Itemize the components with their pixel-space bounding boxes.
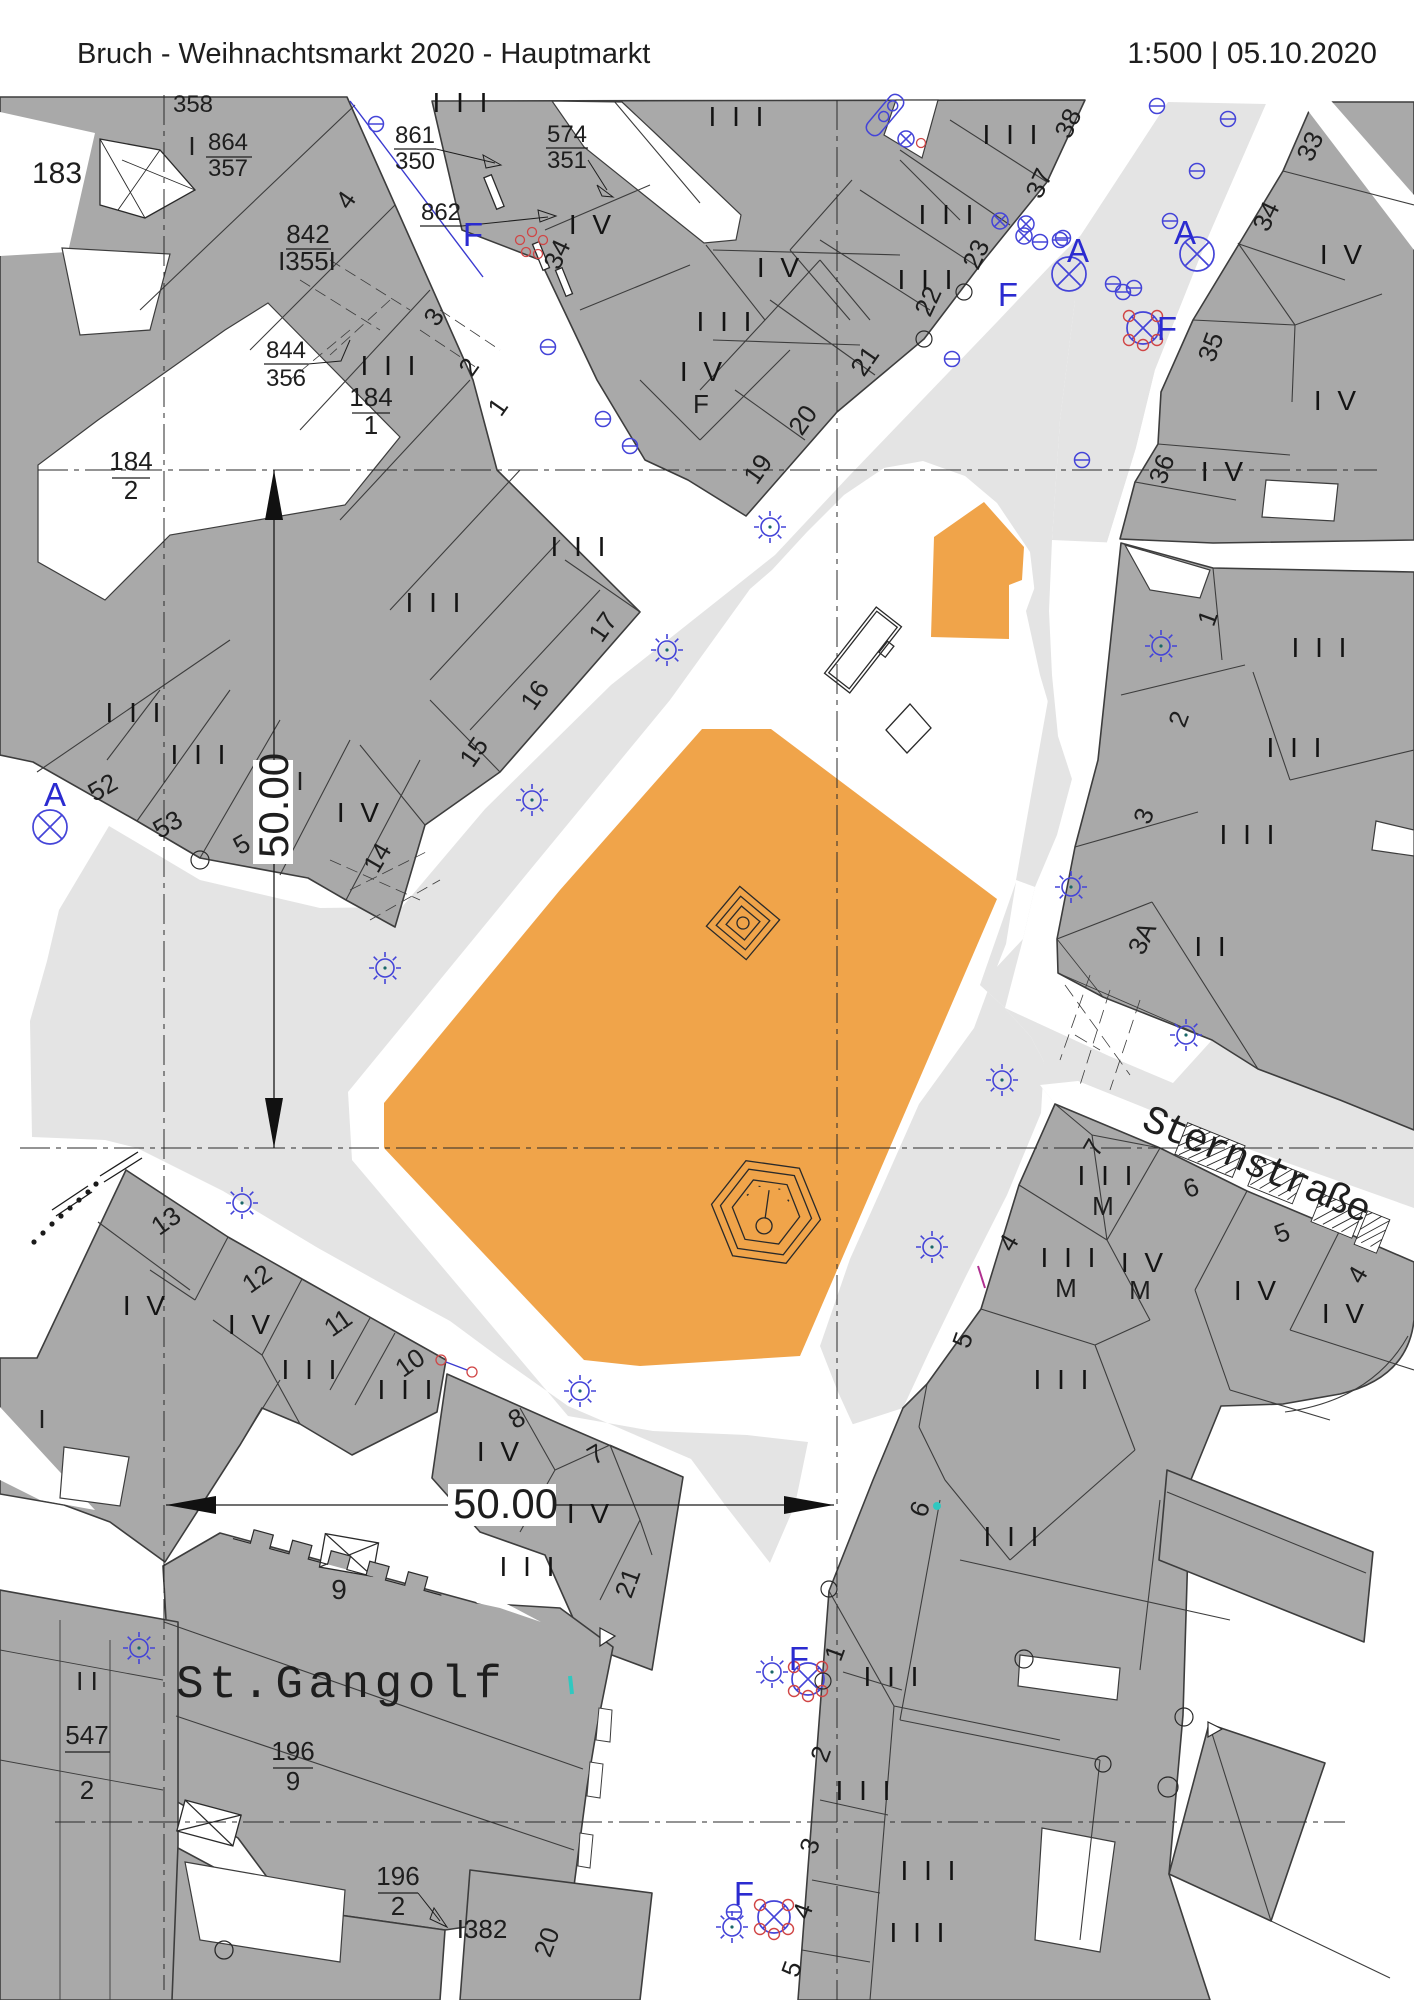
svg-text:I I: I I <box>76 1666 98 1696</box>
svg-text:I382: I382 <box>457 1914 508 1944</box>
svg-text:I I I: I I I <box>983 119 1042 150</box>
svg-text:I V: I V <box>1234 1275 1280 1306</box>
svg-text:1: 1 <box>364 410 378 440</box>
svg-text:St.Gangolf: St.Gangolf <box>176 1659 507 1711</box>
svg-text:I V: I V <box>569 209 615 240</box>
svg-text:I I I: I I I <box>361 350 420 381</box>
svg-text:351: 351 <box>547 147 587 174</box>
svg-text:2: 2 <box>391 1891 405 1921</box>
svg-text:I: I <box>296 766 303 796</box>
svg-text:861: 861 <box>395 122 435 149</box>
svg-text:I I I: I I I <box>836 1775 895 1806</box>
svg-text:547: 547 <box>65 1720 108 1750</box>
svg-text:I I I: I I I <box>1220 819 1279 850</box>
svg-text:358: 358 <box>173 91 213 118</box>
svg-text:F: F <box>463 216 483 253</box>
svg-text:I I: I I <box>1194 931 1229 962</box>
svg-text:I V: I V <box>680 356 726 387</box>
svg-text:F: F <box>1157 310 1177 347</box>
svg-text:I V: I V <box>228 1309 274 1340</box>
svg-text:I I I: I I I <box>551 531 610 562</box>
svg-text:I I I: I I I <box>282 1354 341 1385</box>
svg-text:I355I: I355I <box>278 246 336 276</box>
svg-text:844: 844 <box>266 337 306 364</box>
svg-text:I I I: I I I <box>1041 1242 1100 1273</box>
svg-text:A: A <box>1174 214 1196 251</box>
svg-text:I: I <box>38 1404 45 1434</box>
svg-text:F: F <box>998 276 1018 313</box>
svg-text:I I I: I I I <box>919 199 978 230</box>
svg-text:862: 862 <box>421 199 461 226</box>
svg-text:M: M <box>1092 1191 1114 1221</box>
svg-text:2: 2 <box>80 1775 94 1805</box>
svg-text:I I I: I I I <box>1078 1160 1137 1191</box>
svg-text:A: A <box>44 776 66 813</box>
svg-text:M: M <box>1055 1273 1077 1303</box>
svg-text:I V: I V <box>477 1436 523 1467</box>
svg-text:574: 574 <box>547 121 587 148</box>
svg-text:Bruch - Weihnachtsmarkt 2020 -: Bruch - Weihnachtsmarkt 2020 - Hauptmark… <box>77 38 650 70</box>
svg-text:I V: I V <box>567 1498 613 1529</box>
svg-text:I I I: I I I <box>106 697 165 728</box>
svg-text:50.00: 50.00 <box>250 753 297 858</box>
svg-text:183: 183 <box>32 157 82 190</box>
svg-text:196: 196 <box>271 1736 314 1766</box>
svg-text:I I I: I I I <box>697 306 756 337</box>
svg-text:I V: I V <box>123 1290 169 1321</box>
svg-text:I V: I V <box>1322 1298 1368 1329</box>
svg-text:356: 356 <box>266 365 306 392</box>
svg-text:I I I: I I I <box>1292 632 1351 663</box>
svg-text:I V: I V <box>337 797 383 828</box>
svg-text:I I I: I I I <box>433 87 492 118</box>
svg-text:I I I: I I I <box>378 1374 437 1405</box>
svg-text:9: 9 <box>331 1574 347 1605</box>
svg-text:I V: I V <box>1320 239 1366 270</box>
svg-text:F: F <box>693 389 709 419</box>
svg-text:I V: I V <box>757 252 803 283</box>
svg-text:I: I <box>188 131 195 161</box>
svg-text:I I I: I I I <box>709 101 768 132</box>
svg-text:I V: I V <box>1314 385 1360 416</box>
svg-text:864: 864 <box>208 129 248 156</box>
svg-text:I I I: I I I <box>864 1661 923 1692</box>
svg-text:184: 184 <box>349 382 392 412</box>
svg-text:I I I: I I I <box>1267 732 1326 763</box>
svg-text:I I I: I I I <box>171 739 230 770</box>
svg-text:9: 9 <box>286 1766 300 1796</box>
svg-text:2: 2 <box>124 475 138 505</box>
svg-text:357: 357 <box>208 155 248 182</box>
svg-text:350: 350 <box>395 148 435 175</box>
svg-text:F: F <box>734 1875 754 1912</box>
svg-text:M: M <box>1129 1275 1151 1305</box>
svg-text:I V: I V <box>1201 456 1247 487</box>
svg-text:I I I: I I I <box>901 1855 960 1886</box>
svg-text:196: 196 <box>376 1861 419 1891</box>
svg-text:I I I: I I I <box>890 1917 949 1948</box>
svg-text:I I I: I I I <box>406 587 465 618</box>
svg-text:50.00: 50.00 <box>453 1480 558 1527</box>
svg-text:I I I: I I I <box>984 1521 1043 1552</box>
svg-text:184: 184 <box>109 446 152 476</box>
svg-text:842: 842 <box>286 219 329 249</box>
svg-text:I I I: I I I <box>500 1551 559 1582</box>
svg-text:I I I: I I I <box>1034 1364 1093 1395</box>
svg-text:F: F <box>789 1640 809 1677</box>
svg-text:1:500 | 05.10.2020: 1:500 | 05.10.2020 <box>1127 37 1377 70</box>
svg-text:A: A <box>1067 232 1089 269</box>
svg-text:I V: I V <box>1121 1247 1167 1278</box>
